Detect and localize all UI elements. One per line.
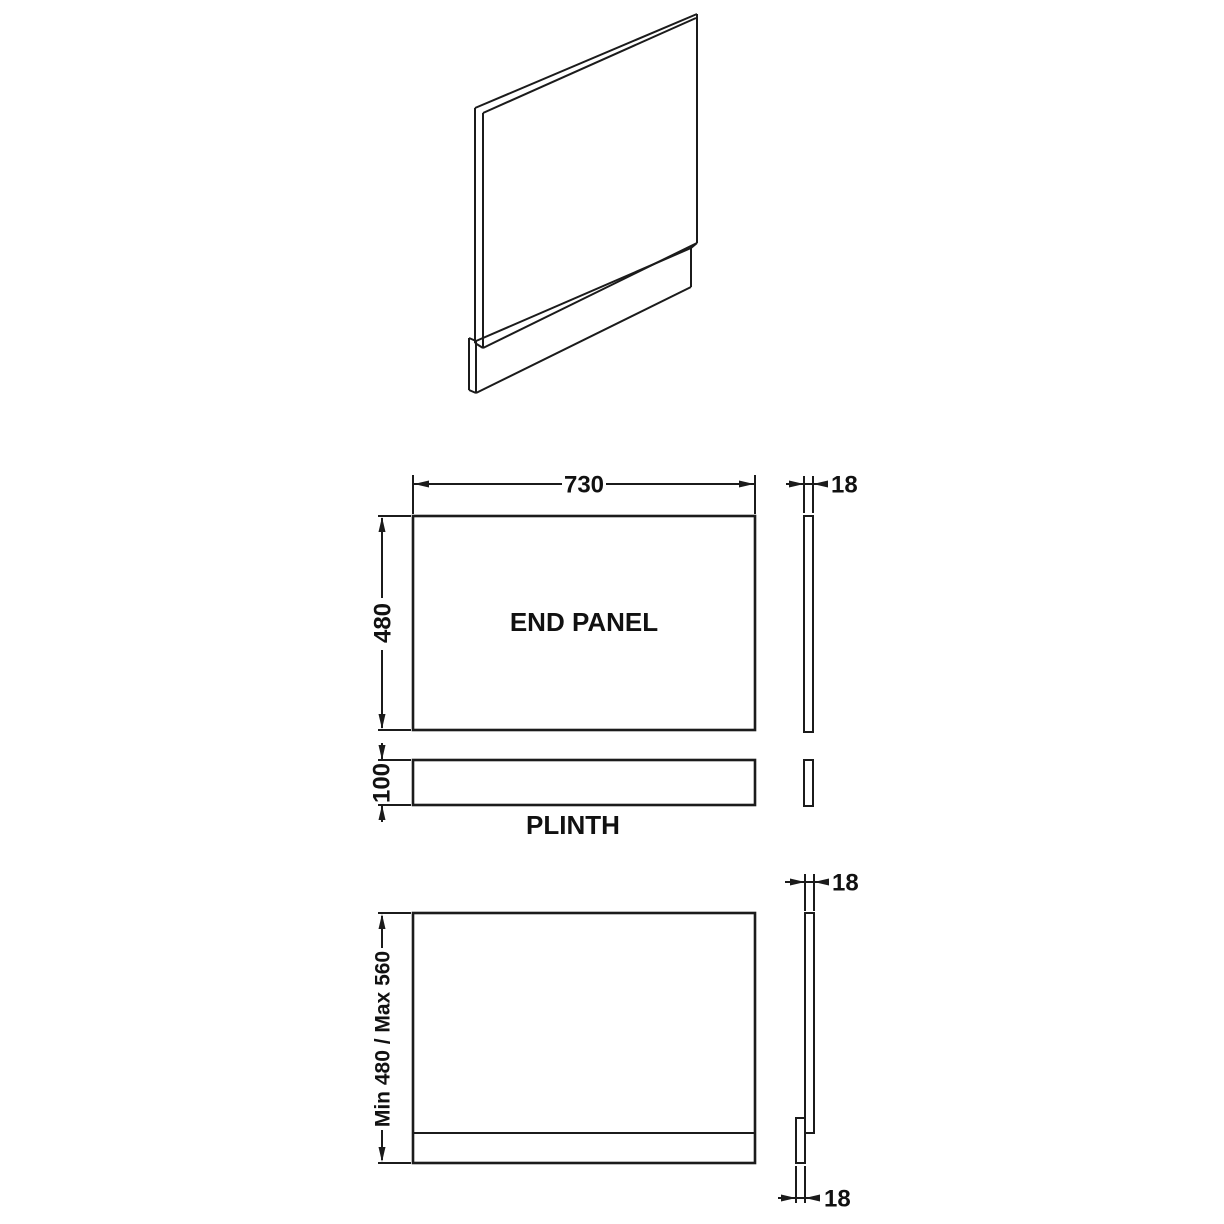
dimension-width-730: 730 [413, 471, 755, 514]
assembled-front-view: Min 480 / Max 560 [371, 913, 755, 1163]
panel-top-edge-outer [475, 14, 697, 108]
arrowhead [379, 805, 386, 820]
height-dimension-text: 480 [369, 603, 396, 643]
plinth-label: PLINTH [526, 810, 620, 840]
plinth-top-edge [476, 248, 691, 341]
plinth-front-view: PLINTH 100 [368, 743, 755, 840]
plinth-bottom-edge [476, 287, 691, 393]
arrowhead [739, 481, 754, 488]
width-dimension-text: 730 [564, 471, 604, 498]
plinth-height-dimension-text: 100 [368, 763, 395, 803]
arrowhead [379, 1147, 386, 1162]
panel-thickness-dimension-text: 18 [832, 869, 859, 896]
arrowhead [790, 879, 805, 886]
dimension-height-range: Min 480 / Max 560 [371, 913, 411, 1163]
arrowhead [414, 481, 429, 488]
dimension-height-100: 100 [368, 743, 411, 822]
assembled-side-view: 18 18 [778, 869, 859, 1212]
plinth-side-outline [796, 1118, 805, 1163]
dimension-plinth-thickness: 18 [778, 1166, 851, 1212]
arrowhead [379, 914, 386, 929]
arrowhead [813, 481, 828, 488]
plinth-thickness-dimension-text: 18 [824, 1185, 851, 1212]
arrowhead [805, 1195, 820, 1202]
arrowhead [814, 879, 829, 886]
bath-end-panel-drawing: END PANEL 730 480 18 [0, 0, 1224, 1224]
plinth-side-outline [804, 760, 813, 806]
isometric-view [469, 14, 697, 393]
panel-side-outline [804, 516, 813, 732]
panel-plinth-step [691, 243, 697, 287]
plinth-outline [413, 760, 755, 805]
technical-drawing-page: END PANEL 730 480 18 [0, 0, 1224, 1224]
assembled-outline [413, 913, 755, 1163]
dimension-panel-thickness: 18 [785, 869, 859, 911]
arrowhead [379, 714, 386, 729]
end-panel-front-view: END PANEL 730 480 [369, 471, 755, 730]
end-panel-side-view: 18 [786, 471, 858, 806]
arrowhead [379, 517, 386, 532]
end-panel-label: END PANEL [510, 607, 658, 637]
arrowhead [789, 481, 804, 488]
panel-side-outline [805, 913, 814, 1133]
height-range-dimension-text: Min 480 / Max 560 [371, 951, 394, 1127]
arrowhead [781, 1195, 796, 1202]
arrowhead [379, 745, 386, 760]
thickness-dimension-text: 18 [831, 471, 858, 498]
dimension-height-480: 480 [369, 516, 411, 730]
plinth-left-edge-bottom [469, 390, 476, 393]
panel-top-edge-inner [483, 18, 696, 113]
